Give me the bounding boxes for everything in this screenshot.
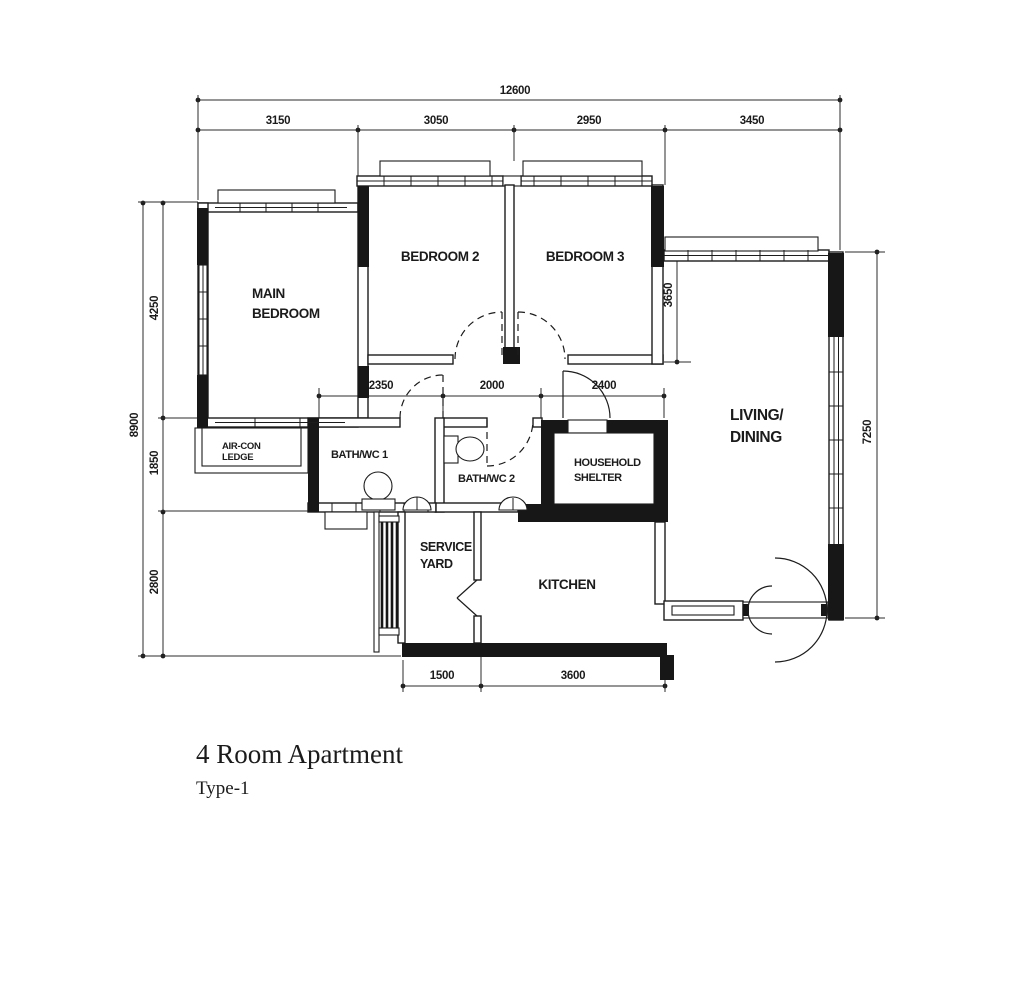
bath2-toilet — [444, 436, 484, 463]
bedroom2-window-ledge — [380, 161, 490, 176]
dim-mid-1: 2350 — [369, 380, 393, 392]
service-yard-slab — [325, 512, 367, 529]
bedroom3-window-ledge — [523, 161, 642, 176]
kitchen-door-swing — [563, 371, 610, 418]
dim-top-4: 3450 — [740, 115, 764, 127]
bedroom2-door-swing — [455, 312, 502, 359]
bedroom3-door-swing — [518, 312, 565, 359]
main-bedroom-window-ledge — [218, 190, 335, 203]
dim-right-2: 7250 — [862, 420, 874, 444]
labels: 12600 3150 3050 2950 3450 8900 4250 1850… — [129, 85, 874, 682]
dim-top-2: 3050 — [424, 115, 448, 127]
entrance-door — [743, 558, 828, 662]
label-bedroom2: BEDROOM 2 — [401, 249, 479, 264]
label-service-yard-2: YARD — [420, 557, 453, 571]
dim-bottom-1: 1500 — [430, 670, 454, 682]
label-kitchen: KITCHEN — [538, 577, 595, 592]
dim-bottom-2: 3600 — [561, 670, 585, 682]
label-shelter-2: SHELTER — [574, 472, 622, 484]
label-bedroom3: BEDROOM 3 — [546, 249, 625, 264]
label-aircon-1: AIR-CON — [222, 441, 261, 452]
dim-mid-3: 2400 — [592, 380, 616, 392]
label-main-bedroom-2: BEDROOM — [252, 306, 320, 321]
living-window-ledge — [665, 237, 818, 251]
dim-left-1: 4250 — [149, 296, 161, 320]
label-bath2: BATH/WC 2 — [458, 473, 515, 485]
floor-plan-drawing: 12600 3150 3050 2950 3450 8900 4250 1850… — [0, 0, 1024, 992]
dim-overall-height: 8900 — [129, 413, 141, 437]
label-bath1: BATH/WC 1 — [331, 449, 388, 461]
label-main-bedroom-1: MAIN — [252, 286, 285, 301]
title-block: 4 Room Apartment Type-1 — [196, 739, 403, 799]
label-living-1: LIVING/ — [730, 407, 784, 424]
floor-plan-page: 12600 3150 3050 2950 3450 8900 4250 1850… — [0, 0, 1024, 992]
dim-right-1: 3650 — [663, 283, 675, 307]
label-living-2: DINING — [730, 429, 782, 446]
service-yard-door — [457, 580, 477, 616]
dim-left-3: 2800 — [149, 570, 161, 594]
bath1-toilet — [362, 472, 395, 510]
dim-top-1: 3150 — [266, 115, 290, 127]
label-shelter-1: HOUSEHOLD — [574, 457, 641, 469]
dim-top-3: 2950 — [577, 115, 601, 127]
label-service-yard-1: SERVICE — [420, 540, 472, 554]
label-aircon-2: LEDGE — [222, 452, 253, 463]
laundry-rack — [374, 512, 399, 652]
bath2-basin — [499, 497, 527, 510]
plan-subtitle: Type-1 — [196, 778, 250, 799]
dim-mid-2: 2000 — [480, 380, 504, 392]
bath1-basin — [403, 497, 431, 510]
plan-title: 4 Room Apartment — [196, 739, 403, 769]
dim-overall-width: 12600 — [500, 85, 530, 97]
bath2-door-swing — [487, 420, 533, 466]
dim-left-2: 1850 — [149, 451, 161, 475]
